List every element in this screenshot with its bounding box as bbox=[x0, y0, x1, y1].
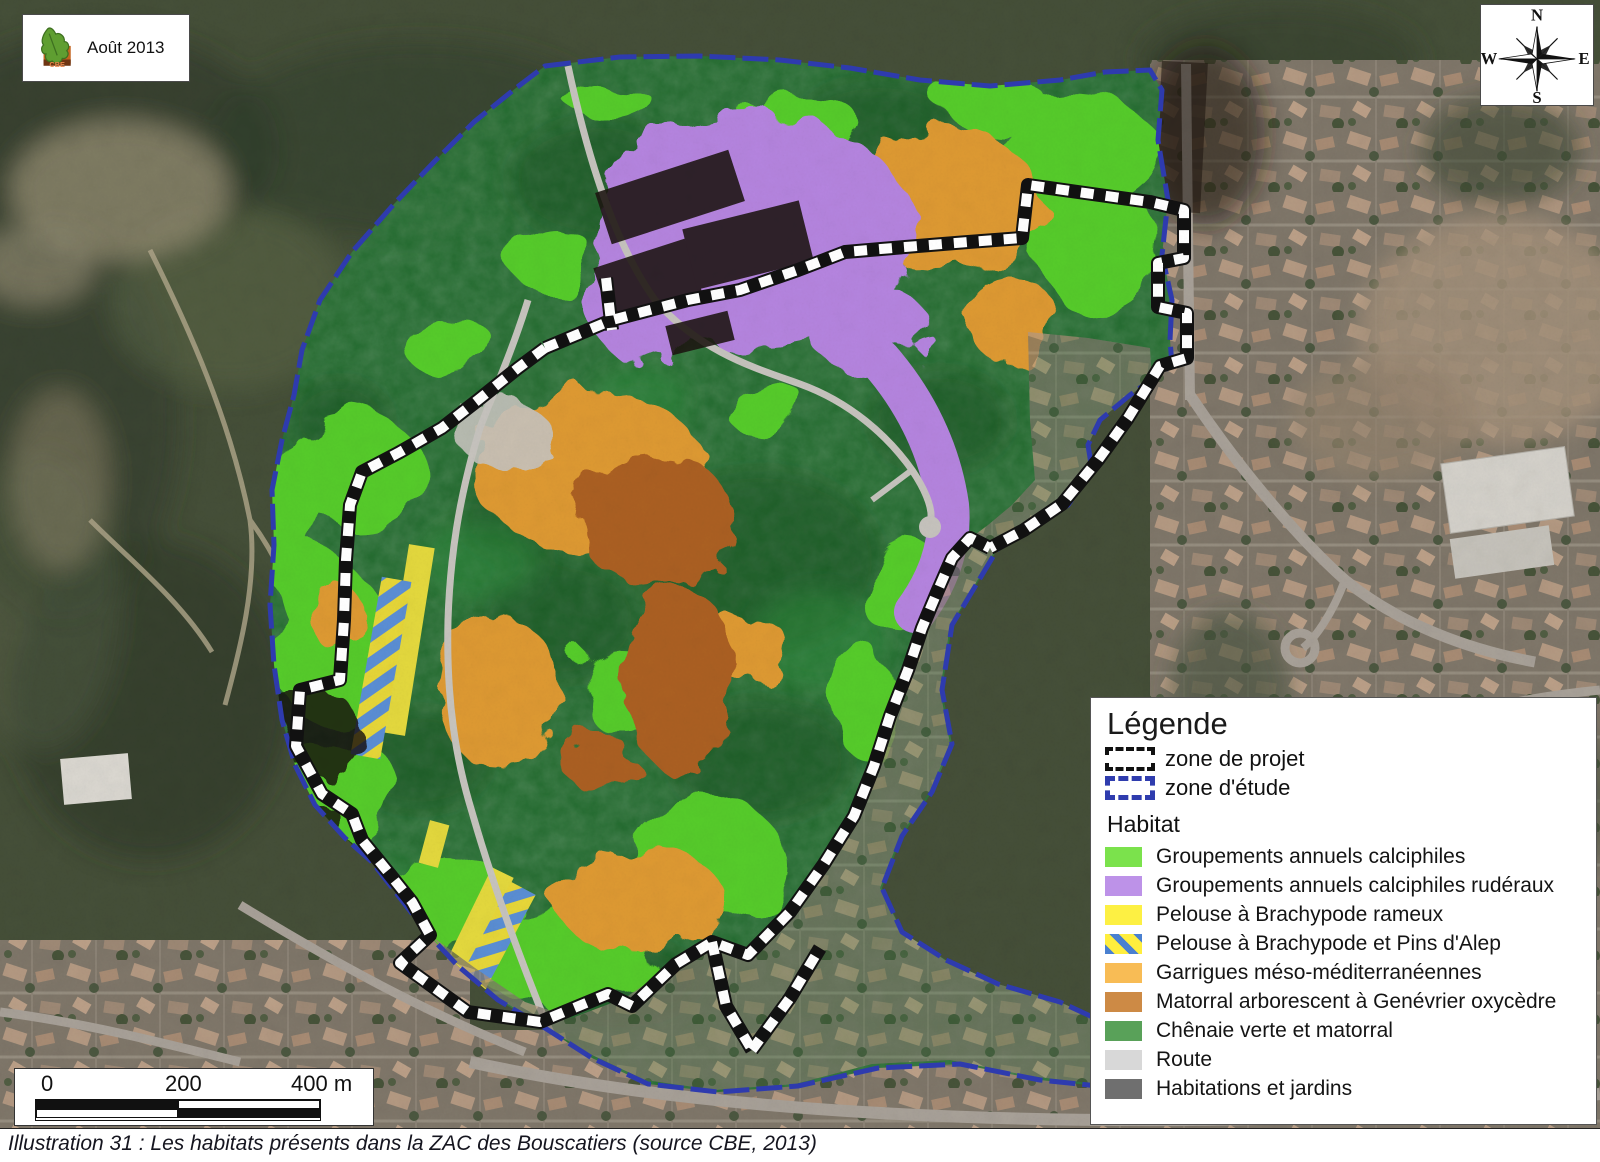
legend-item-label: Habitations et jardins bbox=[1156, 1077, 1352, 1101]
cbe-logo-text: CBE bbox=[49, 60, 65, 69]
legend-item: Pelouse à Brachypode rameux bbox=[1105, 900, 1596, 929]
compass-west-label: W bbox=[1481, 49, 1498, 68]
swatch-pelouse-brachypode bbox=[1105, 905, 1142, 925]
scale-tick-0: 0 bbox=[41, 1071, 53, 1097]
scale-bar: 0 200 400 m bbox=[14, 1068, 374, 1126]
swatch-habitations bbox=[1105, 1079, 1142, 1099]
legend-item: Groupements annuels calciphiles bbox=[1105, 842, 1596, 871]
compass-box: N S W E bbox=[1480, 4, 1594, 106]
legend-item: Groupements annuels calciphiles rudéraux bbox=[1105, 871, 1596, 900]
swatch-garrigues bbox=[1105, 963, 1142, 983]
zone-de-projet-symbol bbox=[1105, 747, 1155, 771]
legend-item-label: Groupements annuels calciphiles bbox=[1156, 845, 1465, 869]
scale-labels: 0 200 400 m bbox=[15, 1071, 373, 1095]
habitat-map: CBE Août 2013 N S W E bbox=[0, 0, 1600, 1128]
swatch-calciphiles-ruderaux bbox=[1105, 876, 1142, 896]
swatch-matorral bbox=[1105, 992, 1142, 1012]
legend-item: Matorral arborescent à Genévrier oxycèdr… bbox=[1105, 987, 1596, 1016]
swatch-chenaie bbox=[1105, 1021, 1142, 1041]
zone-detude-symbol bbox=[1105, 776, 1155, 800]
date-logo-box: CBE Août 2013 bbox=[22, 14, 190, 82]
figure-caption: Illustration 31 : Les habitats présents … bbox=[8, 1132, 817, 1156]
compass-east-label: E bbox=[1578, 49, 1589, 68]
cbe-logo: CBE bbox=[31, 25, 77, 71]
legend-item: Garrigues méso-méditerranéennes bbox=[1105, 958, 1596, 987]
swatch-route bbox=[1105, 1050, 1142, 1070]
map-date-label: Août 2013 bbox=[87, 38, 165, 58]
legend-item-label: Route bbox=[1156, 1048, 1212, 1072]
scale-bar-graphic bbox=[35, 1099, 321, 1121]
compass-north-label: N bbox=[1531, 6, 1543, 25]
legend-title: Légende bbox=[1107, 706, 1596, 742]
legend-item-label: Matorral arborescent à Genévrier oxycèdr… bbox=[1156, 990, 1556, 1014]
page: CBE Août 2013 N S W E bbox=[0, 0, 1600, 1162]
legend-item: Habitations et jardins bbox=[1105, 1074, 1596, 1103]
legend-item-label: Pelouse à Brachypode et Pins d'Alep bbox=[1156, 932, 1501, 956]
legend-item: Pelouse à Brachypode et Pins d'Alep bbox=[1105, 929, 1596, 958]
legend-item-label: Chênaie verte et matorral bbox=[1156, 1019, 1393, 1043]
compass-south-label: S bbox=[1532, 88, 1541, 105]
legend-item-zone-detude: zone d'étude bbox=[1105, 775, 1596, 801]
legend-item-zone-de-projet: zone de projet bbox=[1105, 746, 1596, 772]
scale-tick-400: 400 m bbox=[291, 1071, 352, 1097]
compass-rose-icon: N S W E bbox=[1481, 5, 1593, 105]
legend: Légende zone de projet zone d'étude Habi… bbox=[1090, 697, 1597, 1125]
legend-item-label: Garrigues méso-méditerranéennes bbox=[1156, 961, 1482, 985]
legend-habitat-header: Habitat bbox=[1107, 811, 1596, 838]
scale-tick-200: 200 bbox=[165, 1071, 202, 1097]
zone-de-projet-label: zone de projet bbox=[1165, 746, 1304, 772]
legend-item: Chênaie verte et matorral bbox=[1105, 1016, 1596, 1045]
legend-item: Route bbox=[1105, 1045, 1596, 1074]
swatch-calciphiles bbox=[1105, 847, 1142, 867]
zone-detude-label: zone d'étude bbox=[1165, 775, 1290, 801]
legend-item-label: Groupements annuels calciphiles rudéraux bbox=[1156, 874, 1554, 898]
legend-item-label: Pelouse à Brachypode rameux bbox=[1156, 903, 1443, 927]
swatch-pelouse-pins-alep bbox=[1105, 934, 1142, 954]
